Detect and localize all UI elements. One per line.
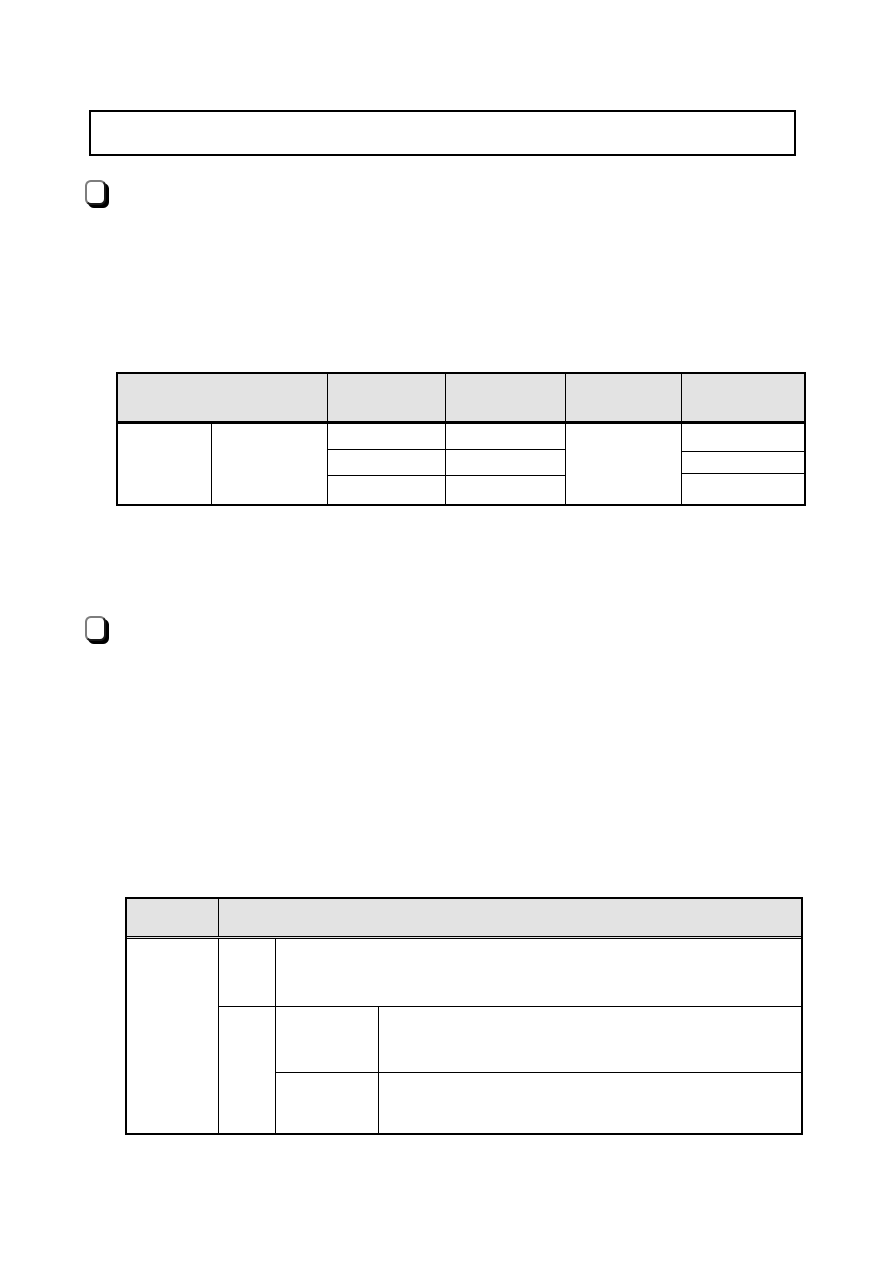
table-2-cell <box>275 939 801 1006</box>
table-1-cell <box>565 424 681 504</box>
table-1-header-cell <box>445 374 565 421</box>
table-1-column <box>681 424 804 504</box>
table-2-cell <box>127 939 218 1133</box>
table-2-header-row <box>127 899 801 939</box>
table-1-header-row <box>118 374 804 424</box>
table-2-cell <box>219 939 275 1006</box>
table-1-cell <box>682 473 804 504</box>
table-2-cell <box>378 1007 801 1072</box>
table-1-body <box>118 424 804 504</box>
table-1 <box>116 372 806 506</box>
table-2-right-region <box>218 939 801 1133</box>
table-2-body <box>127 939 801 1133</box>
table-1-cell <box>328 449 445 475</box>
table-1-column <box>327 424 445 504</box>
table-2-lower-rows <box>219 1007 801 1133</box>
table-1-cell <box>682 451 804 473</box>
table-2-row <box>276 1007 801 1073</box>
table-2-cell <box>276 1073 378 1133</box>
table-2-cell <box>378 1073 801 1133</box>
table-2 <box>125 897 803 1135</box>
table-1-header-cell <box>118 374 327 421</box>
table-1-header-cell <box>327 374 445 421</box>
table-1-cell <box>328 475 445 504</box>
table-1-cell <box>682 424 804 451</box>
notice-box <box>89 110 796 156</box>
table-1-cell <box>446 424 565 449</box>
table-1-cell <box>211 424 327 504</box>
table-1-header-cell <box>565 374 681 421</box>
table-2-nested-region <box>275 1007 801 1133</box>
table-2-row <box>276 1073 801 1133</box>
document-page <box>0 0 893 1262</box>
table-2-cell <box>219 1007 275 1133</box>
table-1-cell <box>446 449 565 475</box>
table-2-cell <box>276 1007 378 1072</box>
square-bullet-icon <box>85 616 106 641</box>
table-1-cell <box>446 475 565 504</box>
table-1-cell <box>118 424 211 504</box>
table-2-row <box>219 939 801 1007</box>
square-bullet-icon <box>85 180 106 205</box>
table-2-header-cell <box>127 899 218 936</box>
table-1-column <box>445 424 565 504</box>
table-1-header-cell <box>681 374 804 421</box>
table-2-header-cell <box>218 899 801 936</box>
table-1-cell <box>328 424 445 449</box>
